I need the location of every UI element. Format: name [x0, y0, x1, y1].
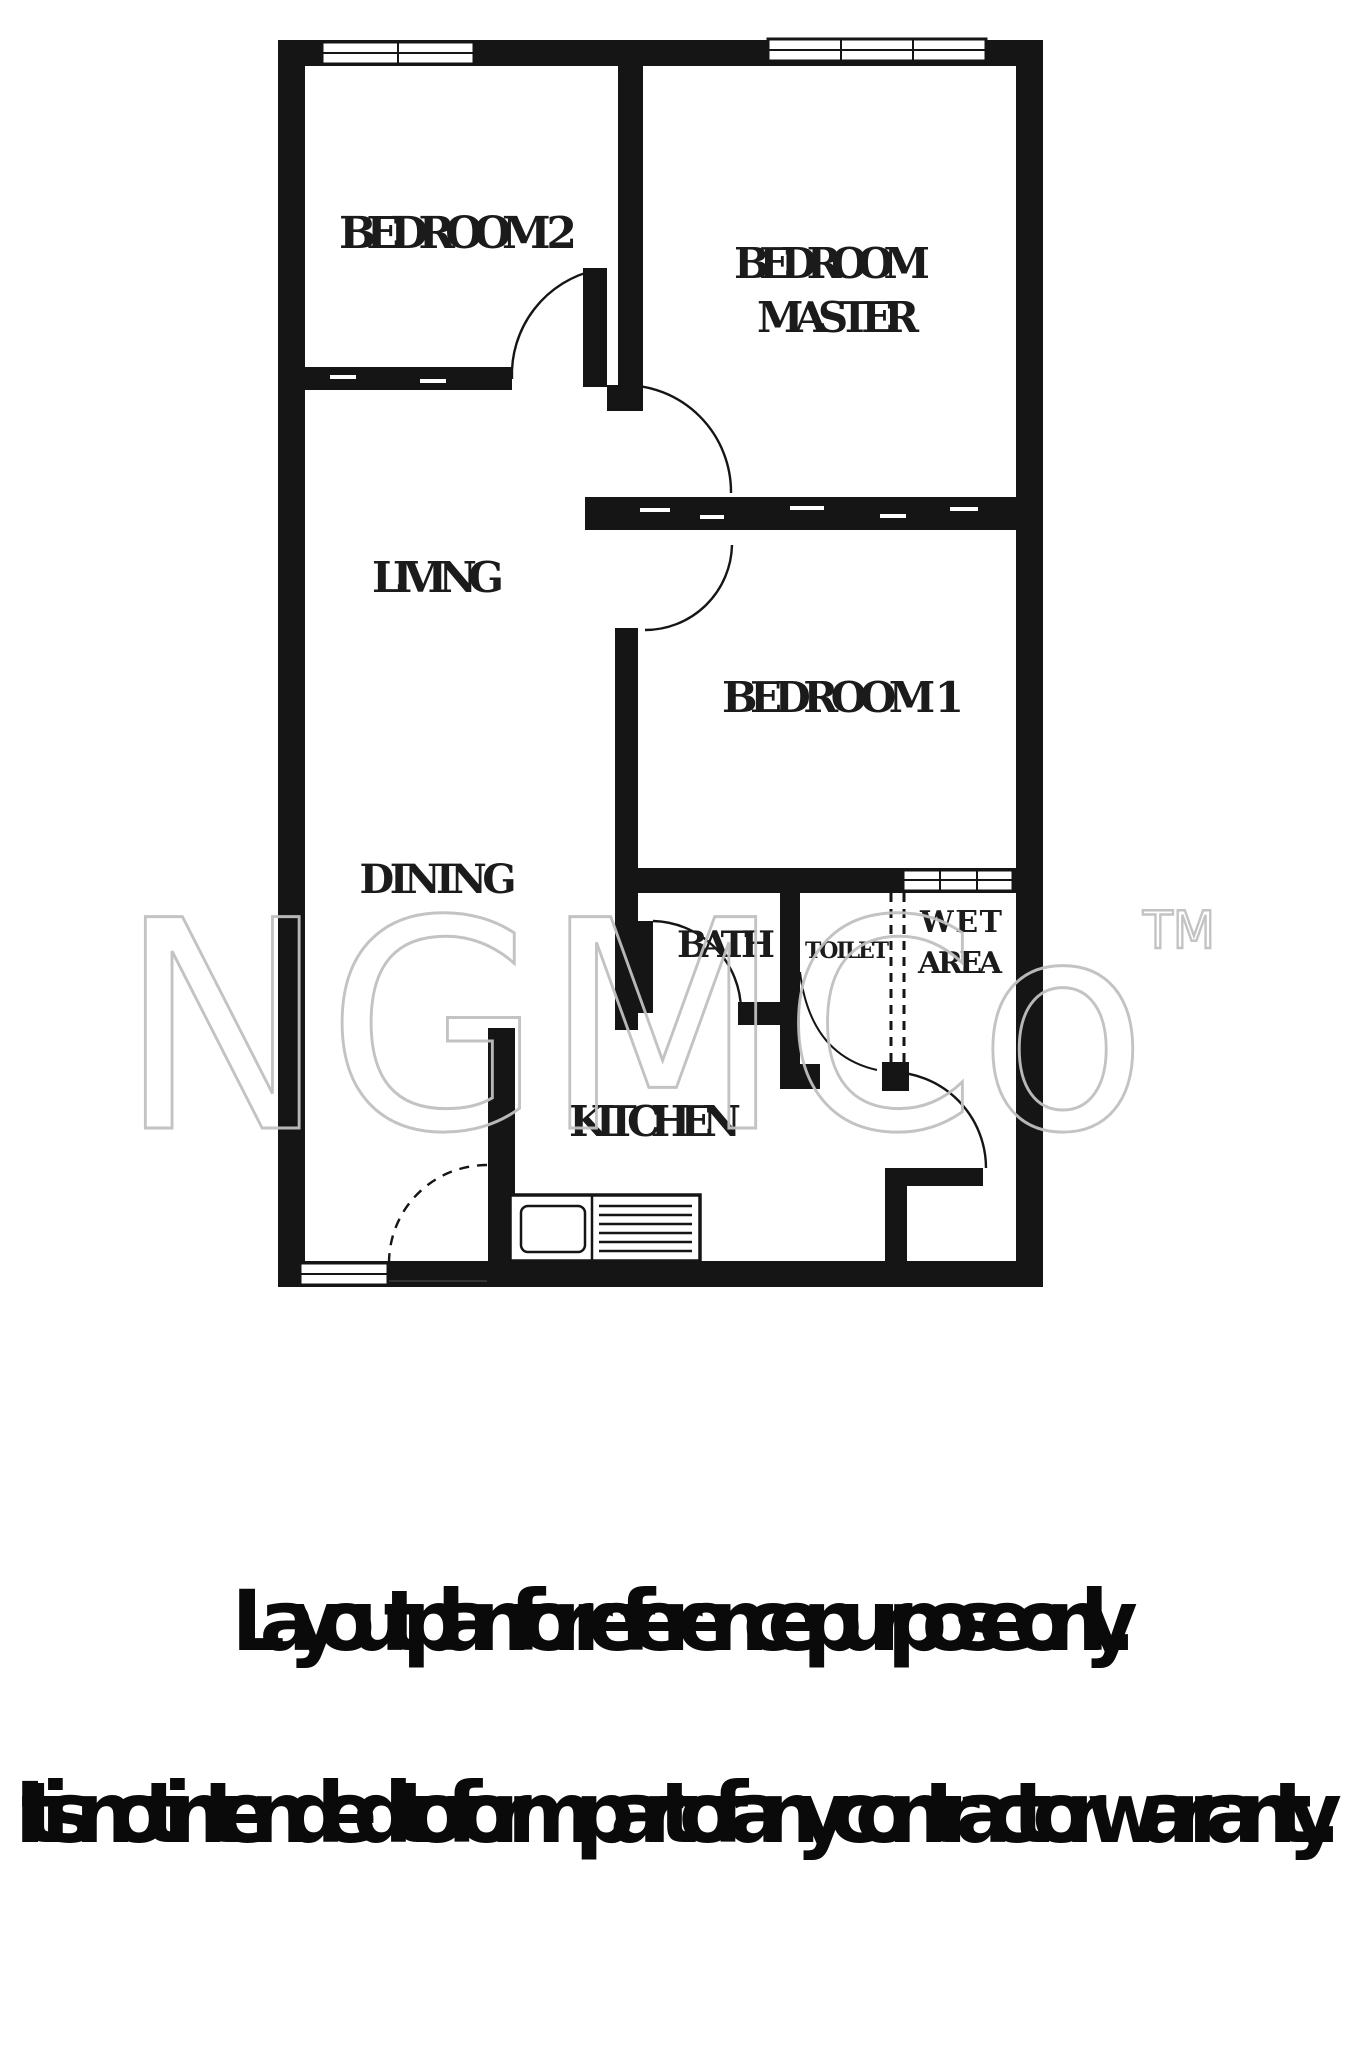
floor-plan-drawing: BEDROOM 2 BEDROOM MASTER LIVING BEDROOM … [0, 0, 1351, 2048]
floor-plan-page: BEDROOM 2 BEDROOM MASTER LIVING BEDROOM … [0, 0, 1351, 2048]
caption-line1: Layout plan for reference purpose only. [232, 1572, 1138, 1670]
captions: Layout plan for reference purpose only. … [15, 1572, 1342, 1862]
label-master-line2: MASTER [757, 293, 920, 342]
label-master-line1: BEDROOM [734, 239, 930, 288]
caption-line2: It is not intended to form part of any c… [15, 1764, 1342, 1862]
kitchen-counter [510, 1195, 700, 1261]
wall-bedroom2-master [618, 53, 643, 387]
label-bedroom2: BEDROOM 2 [339, 208, 577, 259]
door-arc-bedroom1 [645, 545, 732, 630]
watermark-brand: NGMCo [118, 860, 1148, 1197]
label-bedroom1: BEDROOM 1 [722, 673, 964, 722]
window-master-top [768, 39, 986, 61]
wall-master-bottom [585, 497, 1016, 530]
wall-hinge-block [607, 385, 643, 411]
watermark: NGMCo TM [118, 860, 1215, 1197]
outer-wall-bottom [278, 1261, 1043, 1287]
label-living: LIVING [372, 553, 504, 602]
wall-bedroom1-left [615, 628, 638, 893]
door-leaf-bedroom2 [583, 268, 607, 387]
watermark-tm: TM [1142, 901, 1215, 961]
kitchen-sink [521, 1206, 585, 1252]
window-bottom-left [300, 1263, 388, 1285]
window-bedroom2-top [322, 42, 474, 64]
